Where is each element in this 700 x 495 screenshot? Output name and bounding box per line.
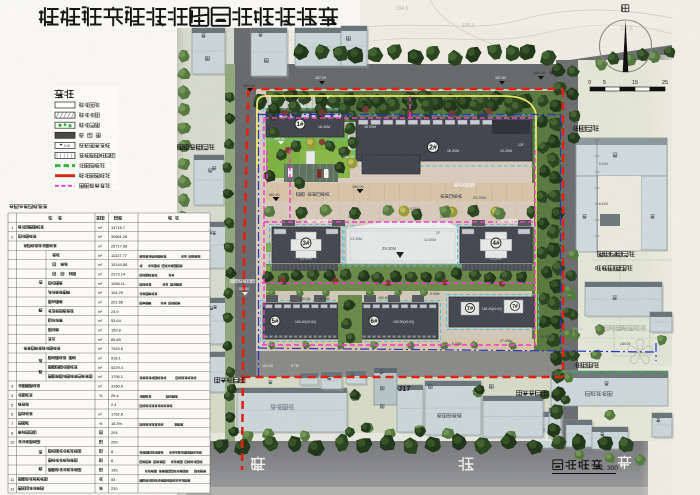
svg-text:188.00: 188.00 — [533, 70, 546, 75]
svg-text:1: 1 — [11, 226, 13, 230]
svg-text:5: 5 — [11, 403, 13, 407]
svg-text:183.80: 183.80 — [300, 297, 310, 301]
svg-text:201.66: 201.66 — [111, 300, 123, 305]
svg-text:186.10: 186.10 — [348, 215, 358, 219]
svg-text:918.1: 918.1 — [111, 356, 121, 361]
svg-text:16.3%: 16.3% — [111, 421, 123, 426]
svg-text:53.64: 53.64 — [111, 318, 122, 323]
svg-text:104.29: 104.29 — [111, 290, 123, 295]
svg-text:187.60: 187.60 — [495, 76, 506, 80]
svg-text:184.00: 184.00 — [620, 342, 630, 346]
svg-text:10144.88: 10144.88 — [111, 262, 127, 267]
svg-text:187.20: 187.20 — [243, 83, 256, 88]
svg-text:186.00: 186.00 — [352, 185, 364, 189]
svg-text:20.30M: 20.30M — [473, 195, 486, 200]
svg-text:15: 15 — [632, 80, 638, 86]
svg-text:0: 0 — [588, 80, 591, 86]
svg-text:204: 204 — [111, 430, 118, 435]
svg-text:8: 8 — [11, 431, 13, 435]
svg-text:183.90: 183.90 — [378, 296, 388, 300]
svg-text:14715.7: 14715.7 — [111, 225, 125, 230]
svg-text:6: 6 — [11, 413, 13, 417]
svg-text:53: 53 — [111, 477, 115, 482]
svg-text:195: 195 — [111, 468, 118, 473]
svg-text:5.50M: 5.50M — [320, 297, 330, 301]
svg-text:3150.6: 3150.6 — [111, 384, 123, 389]
svg-text:3: 3 — [11, 385, 13, 389]
svg-text:2: 2 — [11, 235, 13, 239]
svg-text:6.00M: 6.00M — [452, 342, 462, 346]
svg-text:7943.6: 7943.6 — [111, 346, 123, 351]
svg-text:1762.8: 1762.8 — [111, 412, 123, 417]
svg-text:10.27M: 10.27M — [540, 335, 551, 339]
svg-text:5: 5 — [603, 80, 606, 86]
svg-text:30661.26: 30661.26 — [111, 234, 127, 239]
svg-text:27.40M: 27.40M — [500, 339, 511, 343]
svg-text:2373.14: 2373.14 — [111, 272, 126, 277]
svg-text:4: 4 — [11, 394, 13, 398]
svg-text:25: 25 — [662, 80, 668, 86]
svg-text:186.00: 186.00 — [440, 215, 450, 219]
svg-text:2.4: 2.4 — [111, 402, 117, 407]
svg-text:8.40M: 8.40M — [599, 202, 608, 206]
svg-text:11: 11 — [10, 478, 14, 482]
svg-text:1795.1: 1795.1 — [111, 374, 123, 379]
svg-text:183.60: 183.60 — [262, 364, 273, 368]
svg-text:5229.4: 5229.4 — [111, 365, 124, 370]
svg-text:0.00: 0.00 — [64, 144, 70, 148]
svg-text:11327.77: 11327.77 — [111, 253, 127, 258]
svg-text:7: 7 — [11, 422, 13, 426]
svg-text:185.40: 185.40 — [268, 193, 280, 197]
svg-text:230: 230 — [111, 486, 118, 491]
svg-text:1:: 1: — [600, 465, 606, 472]
svg-text:12: 12 — [10, 487, 14, 491]
svg-text:8.7M: 8.7M — [291, 364, 299, 368]
svg-text:1266.11: 1266.11 — [111, 281, 125, 286]
svg-text:5.50M: 5.50M — [430, 292, 440, 296]
svg-text:300: 300 — [607, 465, 618, 472]
svg-text:9.10M: 9.10M — [599, 162, 608, 166]
svg-text:184.5: 184.5 — [572, 326, 583, 331]
svg-text:183.40: 183.40 — [238, 287, 249, 291]
svg-text:23.9: 23.9 — [111, 309, 119, 314]
svg-text:85.89: 85.89 — [111, 337, 121, 342]
svg-text:187.20: 187.20 — [315, 76, 326, 80]
svg-text:159.8: 159.8 — [111, 328, 121, 333]
svg-text:29.4: 29.4 — [111, 393, 119, 398]
svg-text:25717.68: 25717.68 — [111, 244, 127, 249]
svg-text:185.60: 185.60 — [274, 137, 285, 141]
svg-text:10: 10 — [10, 441, 14, 445]
svg-text:8: 8 — [111, 449, 113, 454]
svg-text:209: 209 — [111, 440, 118, 445]
svg-text:186.10: 186.10 — [343, 155, 354, 159]
svg-text:5.50M: 5.50M — [410, 207, 420, 211]
svg-text:6: 6 — [111, 458, 113, 463]
